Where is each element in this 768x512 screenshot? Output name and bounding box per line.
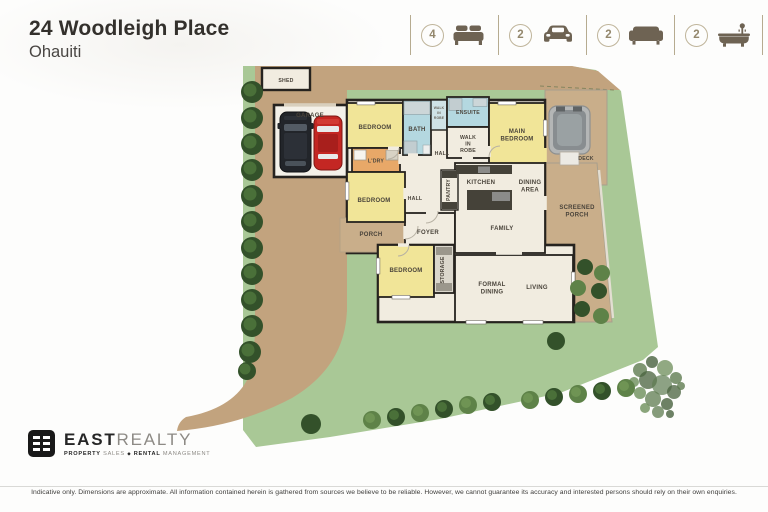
label-garage: GARAGE <box>296 113 324 119</box>
label-formal-dining-1: FORMAL <box>478 282 505 288</box>
feature-bathrooms: 2 <box>674 15 762 55</box>
car-black-suv <box>278 112 314 172</box>
label-main-bedroom-2: BEDROOM <box>500 137 533 143</box>
label-wir-3: ROBE <box>460 148 476 154</box>
label-bedroom-bottom: BEDROOM <box>389 268 422 274</box>
label-wir-2: IN <box>465 142 471 148</box>
label-bedroom-top: BEDROOM <box>358 125 391 131</box>
listing-flyer: 24 Woodleigh Place Ohauiti 4 2 <box>0 0 768 512</box>
label-formal-dining-2: DINING <box>481 290 504 296</box>
label-screened-porch-1: SCREENED <box>559 205 595 211</box>
label-robe-small-1: WALK <box>434 106 445 110</box>
label-dining-2: AREA <box>521 188 539 194</box>
label-bedroom-mid: BEDROOM <box>357 198 390 204</box>
label-ensuite: ENSUITE <box>456 110 480 116</box>
label-deck: DECK <box>578 156 594 162</box>
large-tree <box>629 356 685 418</box>
label-storage: STORAGE <box>440 256 446 283</box>
brand-bold: EAST <box>64 430 117 449</box>
car-icon <box>540 22 576 48</box>
car-count-badge: 2 <box>509 24 532 47</box>
feature-garaging: 2 <box>498 15 586 55</box>
bath-icon <box>716 22 752 48</box>
label-hall-upper: HALL <box>435 151 450 157</box>
label-pantry: PANTRY <box>446 179 452 201</box>
disclaimer-text: Indicative only. Dimensions are approxim… <box>0 489 768 496</box>
label-porch: PORCH <box>360 232 383 238</box>
floor-plan: SHED GARAGE BEDROOM BATH WALK IN ROBE EN… <box>150 55 768 455</box>
bedroom-count-badge: 4 <box>421 24 444 47</box>
label-dining-1: DINING <box>519 180 542 186</box>
label-kitchen: KITCHEN <box>467 180 495 186</box>
car-red <box>314 116 342 170</box>
feature-strip: 4 2 <box>410 15 763 55</box>
feature-bedrooms: 4 <box>410 15 498 55</box>
agency-logo: EASTREALTY PROPERTY SALES ◆ RENTAL MANAG… <box>28 430 210 457</box>
label-living: LIVING <box>526 285 548 291</box>
agency-name: EASTREALTY PROPERTY SALES ◆ RENTAL MANAG… <box>64 431 210 457</box>
page-title: 24 Woodleigh Place <box>29 16 229 42</box>
label-hall-lower: HALL <box>408 196 423 202</box>
label-screened-porch-2: PORCH <box>566 213 589 219</box>
label-main-bedroom-1: MAIN <box>509 129 525 135</box>
brand-light: REALTY <box>117 430 193 449</box>
feature-living-rooms: 2 <box>586 15 674 55</box>
label-bath: BATH <box>408 127 425 133</box>
label-wir-1: WALK <box>460 135 476 141</box>
label-robe-small-2: IN <box>437 111 441 115</box>
bed-icon <box>452 22 488 48</box>
agency-tagline: PROPERTY SALES ◆ RENTAL MANAGEMENT <box>64 451 210 457</box>
label-laundry: L'DRY <box>368 159 385 165</box>
label-shed: SHED <box>278 78 293 84</box>
label-family: FAMILY <box>491 226 514 232</box>
sofa-icon <box>628 22 664 48</box>
east-realty-logo-icon <box>28 430 55 457</box>
living-count-badge: 2 <box>597 24 620 47</box>
bath-count-badge: 2 <box>685 24 708 47</box>
label-foyer: FOYER <box>417 230 439 236</box>
footer-divider <box>0 486 768 487</box>
label-robe-small-3: ROBE <box>434 116 445 120</box>
